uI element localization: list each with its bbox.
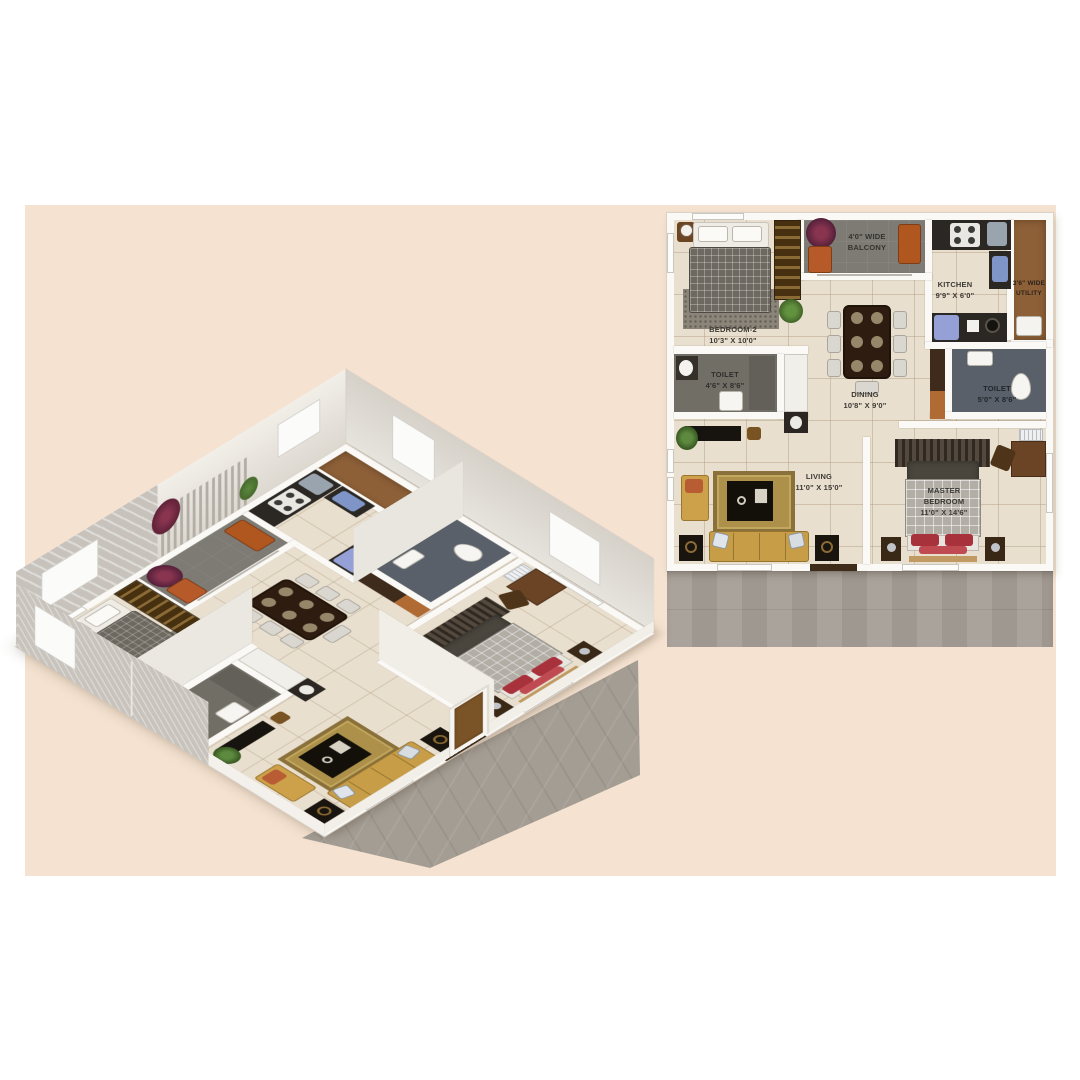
room-label-toilet-right: TOILET 5'0" X 8'6": [978, 383, 1017, 405]
window: [278, 399, 320, 458]
plant: [779, 299, 803, 323]
decor-ring: [737, 496, 746, 505]
sliding-door-line: [817, 274, 912, 276]
wall: [777, 354, 784, 419]
sofa-seam: [733, 533, 734, 560]
sofa-seam: [370, 767, 394, 782]
flower-plant: [806, 218, 836, 248]
bolster: [919, 546, 967, 554]
cistern: [967, 351, 993, 366]
room-name: UTILITY: [1016, 289, 1042, 299]
plate: [871, 336, 883, 348]
room-dims: 10'8" X 9'0": [843, 400, 886, 411]
room-label-balcony: 4'0" WIDE BALCONY: [848, 231, 886, 253]
cushion: [261, 769, 288, 786]
room-name: DINING: [851, 389, 878, 400]
wall: [193, 678, 313, 752]
room-label-bedroom2: BEDROOM-2 10'3" X 10'0": [709, 324, 757, 346]
window: [392, 414, 434, 484]
room-dims: 11'0" X 14'6": [920, 507, 967, 518]
floorplan-2d-view: BEDROOM-2 10'3" X 10'0" 4'0" WIDE BALCON…: [667, 213, 1053, 647]
decor-ring: [320, 755, 335, 765]
plate: [851, 336, 863, 348]
wash-basin: [679, 360, 693, 376]
red-pillow: [530, 656, 564, 677]
red-pillow: [911, 534, 939, 546]
room-label-master: MASTER BEDROOM 11'0" X 14'6": [920, 485, 967, 518]
cushion: [685, 479, 703, 493]
burner: [954, 226, 961, 233]
pillow: [732, 226, 762, 242]
room-dims: 10'3" X 10'0": [709, 335, 756, 346]
speaker: [314, 805, 335, 818]
plate: [851, 312, 863, 324]
throw-pillow: [396, 744, 421, 760]
cabinet-brown: [930, 391, 945, 419]
room-name: MASTER: [928, 485, 961, 496]
wall: [899, 421, 1046, 428]
wall: [674, 346, 808, 354]
living-rug: [278, 716, 401, 792]
bed-base: [909, 556, 977, 562]
sink-blue: [992, 256, 1008, 282]
plate: [871, 312, 883, 324]
dining-chair: [893, 359, 907, 377]
sofa-seam: [348, 781, 372, 796]
plant: [676, 426, 698, 450]
sofa-seam: [785, 533, 786, 560]
burner: [954, 237, 961, 244]
wardrobe: [774, 220, 801, 300]
room-label-dining: DINING 10'8" X 9'0": [843, 389, 886, 411]
red-pillow: [501, 674, 535, 695]
shower-area: [749, 356, 775, 410]
speaker: [430, 733, 451, 746]
dining-chair: [893, 311, 907, 329]
dining-chair: [827, 359, 841, 377]
room-label-kitchen: KITCHEN 9'9" X 6'0": [936, 279, 975, 301]
tv-unit: [215, 721, 276, 758]
room-name: TOILET: [983, 383, 1011, 394]
planter-box: [808, 246, 832, 273]
page-canvas: BEDROOM-2 10'3" X 10'0" 4'0" WIDE BALCON…: [0, 0, 1080, 1080]
plate: [851, 360, 863, 372]
room-label-toilet-left: TOILET 4'6" X 8'6": [706, 369, 745, 391]
sofa-seam: [759, 533, 760, 560]
window: [667, 449, 674, 473]
entrance-threshold: [810, 564, 857, 571]
utility-sink: [1016, 316, 1042, 336]
room-name: 4'0" WIDE: [848, 231, 885, 242]
cabinet-white: [784, 354, 808, 412]
dining-chair: [827, 335, 841, 353]
room-name: BALCONY: [848, 242, 886, 253]
room-dims: 5'0" X 8'6": [978, 394, 1017, 405]
table-lamp: [681, 225, 692, 236]
speaker: [821, 541, 833, 553]
grinder: [985, 318, 1000, 333]
room-dims: 4'6" X 8'6": [706, 380, 745, 391]
room-name: TOILET: [711, 369, 739, 380]
ac-unit: [1019, 429, 1043, 441]
plan-ground-strip: [667, 571, 1053, 647]
side-cabinet: [269, 711, 292, 725]
side-cabinet: [747, 427, 761, 440]
room-name: BEDROOM-2: [709, 324, 757, 335]
wash-basin: [296, 683, 317, 696]
room-dims: 9'9" X 6'0": [936, 290, 975, 301]
kitchen-sink-unit: [987, 222, 1007, 246]
bed2-duvet: [689, 247, 771, 313]
room-dims: 11'0" X 15'0": [795, 482, 842, 493]
counter-item: [967, 320, 979, 332]
room-name: LIVING: [806, 471, 832, 482]
dining-chair: [827, 311, 841, 329]
window: [667, 233, 674, 273]
wash-basin: [790, 416, 802, 429]
plate: [871, 360, 883, 372]
wall: [231, 660, 293, 698]
magazine: [329, 740, 351, 754]
wall: [925, 342, 1046, 349]
window: [692, 213, 744, 220]
lamp: [991, 543, 1000, 552]
red-pillow: [945, 534, 973, 546]
sofa-seam: [392, 754, 416, 769]
room-name: BEDROOM: [924, 496, 965, 507]
window: [1046, 453, 1053, 513]
magazine: [755, 489, 767, 503]
window: [717, 564, 772, 571]
pillow: [698, 226, 728, 242]
room-label-utility: 3'6" WIDE UTILITY: [1013, 279, 1045, 299]
study-desk: [1011, 441, 1046, 477]
balcony-chair: [898, 224, 921, 264]
shower-area: [209, 666, 278, 708]
coffee-table: [298, 733, 372, 778]
room-name: 3'6" WIDE: [1013, 279, 1045, 289]
basin-counter: [287, 678, 326, 702]
toilet-wc: [719, 391, 743, 411]
washing-machine: [934, 315, 959, 340]
window: [902, 564, 959, 571]
floorplan-2d-plan: BEDROOM-2 10'3" X 10'0" 4'0" WIDE BALCON…: [667, 213, 1053, 571]
speaker: [685, 541, 697, 553]
burner: [968, 226, 975, 233]
cabinet-tall-brown: [930, 349, 945, 391]
throw-pillow: [331, 784, 356, 799]
room-name: KITCHEN: [938, 279, 973, 290]
lamp: [887, 543, 896, 552]
throw-pillow: [788, 532, 806, 550]
cabinet-white: [237, 647, 307, 690]
wall: [863, 437, 870, 564]
room-label-living: LIVING 11'0" X 15'0": [795, 471, 842, 493]
wall: [945, 349, 952, 419]
dining-chair: [893, 335, 907, 353]
window: [667, 477, 674, 501]
lamp: [577, 647, 592, 657]
wall: [930, 412, 1046, 419]
toilet-wc: [214, 701, 252, 724]
wall: [925, 220, 932, 344]
burner: [968, 237, 975, 244]
